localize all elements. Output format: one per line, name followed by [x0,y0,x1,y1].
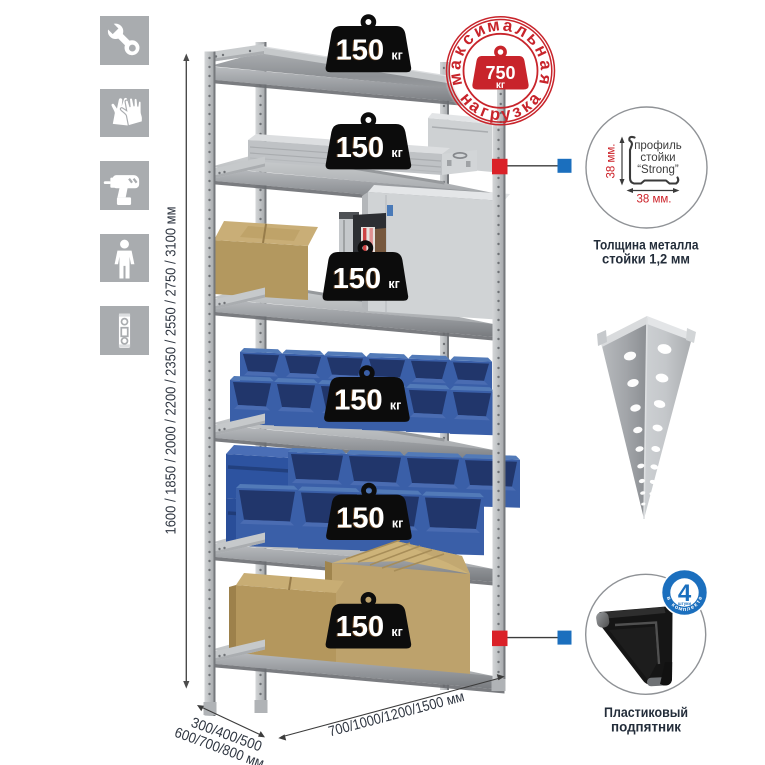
svg-text:1600 / 1850 / 2000 / 2200 / 23: 1600 / 1850 / 2000 / 2200 / 2350 / 2550 … [164,207,180,535]
svg-text:профиль: профиль [634,140,682,152]
svg-text:кг: кг [392,517,403,531]
svg-text:38 мм.: 38 мм. [606,144,618,179]
svg-text:стойки: стойки [640,152,675,164]
svg-text:кг: кг [388,277,399,291]
svg-text:стойки 1,2 мм: стойки 1,2 мм [602,252,690,267]
svg-text:кг: кг [391,146,402,160]
svg-text:кг: кг [390,398,401,412]
svg-text:кг: кг [496,80,505,91]
svg-text:кг: кг [391,49,402,63]
svg-text:150: 150 [336,35,384,67]
svg-text:150: 150 [336,132,384,164]
svg-text:700/1000/1200/1500 мм: 700/1000/1200/1500 мм [327,689,466,740]
svg-text:“Strong”: “Strong” [637,164,679,176]
svg-text:150: 150 [336,611,384,643]
svg-text:Толщина металла: Толщина металла [594,238,699,253]
svg-text:150: 150 [336,503,384,535]
svg-text:Пластиковый: Пластиковый [604,705,688,720]
svg-text:150: 150 [333,263,381,295]
svg-text:38 мм.: 38 мм. [637,194,672,206]
svg-text:подпятник: подпятник [611,720,681,735]
svg-text:кг: кг [391,625,402,639]
svg-text:150: 150 [334,384,382,416]
